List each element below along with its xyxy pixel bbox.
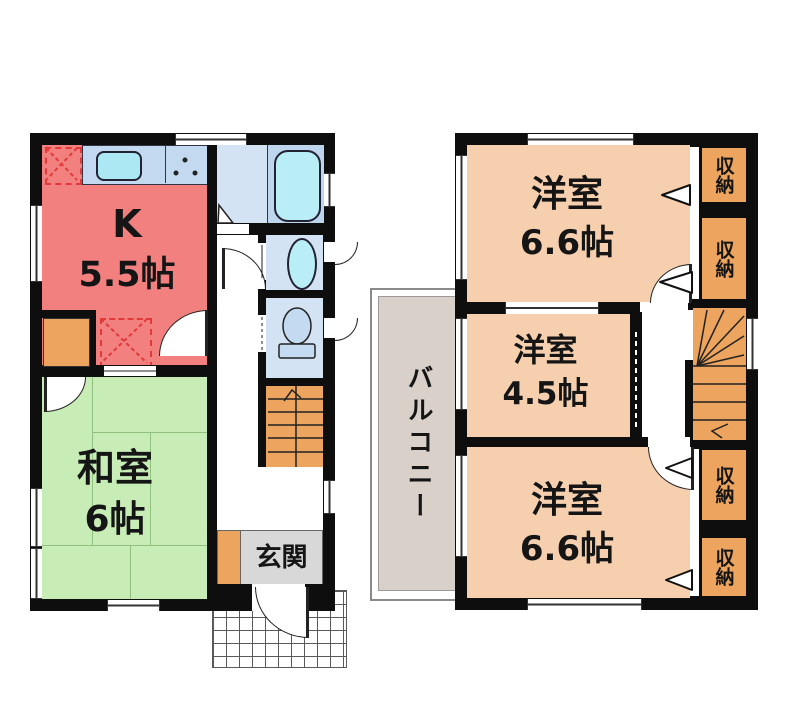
storage-box: 収納 <box>702 538 746 596</box>
entrance-area: 玄関 <box>240 530 323 586</box>
wall-genkan-bottom-right <box>305 584 335 611</box>
ext-door-gap <box>324 242 335 262</box>
staircase-1f <box>266 386 323 467</box>
storage-box: 収納 <box>702 148 746 202</box>
staircase-2f <box>693 308 746 440</box>
window <box>747 318 758 370</box>
door-arc-exterior-washbasin <box>335 242 358 265</box>
room-2f-bottom-label: 洋室 6.6帖 <box>462 476 672 574</box>
ext-door-gap <box>324 318 335 338</box>
wall-genkan-bottom-left <box>207 584 252 611</box>
storage-box: 収納 <box>702 450 746 520</box>
room-2f-middle-label: 洋室 4.5帖 <box>458 328 633 416</box>
window <box>31 205 42 282</box>
storage-box: 収納 <box>702 218 746 299</box>
wall-washbasin-bottom <box>258 290 323 298</box>
wall-stairs-left-2f <box>685 360 693 447</box>
bath-door-gap <box>217 224 249 234</box>
door-arc-exterior-toilet <box>335 318 358 341</box>
door-gap-2f-bottom <box>648 437 690 447</box>
entrance-step <box>217 530 242 586</box>
utility-box <box>43 318 90 367</box>
table-space-dashed <box>100 318 152 368</box>
kitchen-label: K 5.5帖 <box>47 198 207 300</box>
window <box>107 600 160 611</box>
storage-label: 収納 <box>711 156 738 194</box>
wall-toilet-bottom <box>258 378 323 386</box>
floorplan-canvas: バルコニー 玄関 <box>0 0 800 713</box>
balcony-label: バルコニー <box>400 364 437 524</box>
window <box>505 302 599 314</box>
wall-under-stairs <box>693 440 746 447</box>
storage-label: 収納 <box>711 548 738 586</box>
balcony-floor: バルコニー <box>378 296 459 591</box>
sliding-door-gap <box>104 366 156 376</box>
window <box>175 134 247 145</box>
kitchen-sink <box>96 151 142 181</box>
toilet-door-gap <box>258 315 266 352</box>
room-2f-top-label: 洋室 6.6帖 <box>462 170 672 268</box>
entrance-label: 玄関 <box>255 540 307 576</box>
fridge-space-dashed <box>45 147 82 185</box>
storage-label: 収納 <box>711 466 738 504</box>
window <box>527 599 642 610</box>
washitsu-label: 和室 6帖 <box>40 442 190 546</box>
window <box>31 548 42 599</box>
washbasin-sink <box>287 238 317 290</box>
storage-label: 収納 <box>711 240 738 278</box>
counter-divider <box>165 145 166 183</box>
window <box>324 173 335 207</box>
wall-kitchen-corridor <box>207 145 217 599</box>
window <box>324 480 335 514</box>
tatami-line <box>130 545 131 599</box>
bathtub <box>274 150 321 222</box>
wall-stairs-left-1f <box>258 386 266 467</box>
toilet-room <box>266 298 323 378</box>
window <box>527 134 634 145</box>
